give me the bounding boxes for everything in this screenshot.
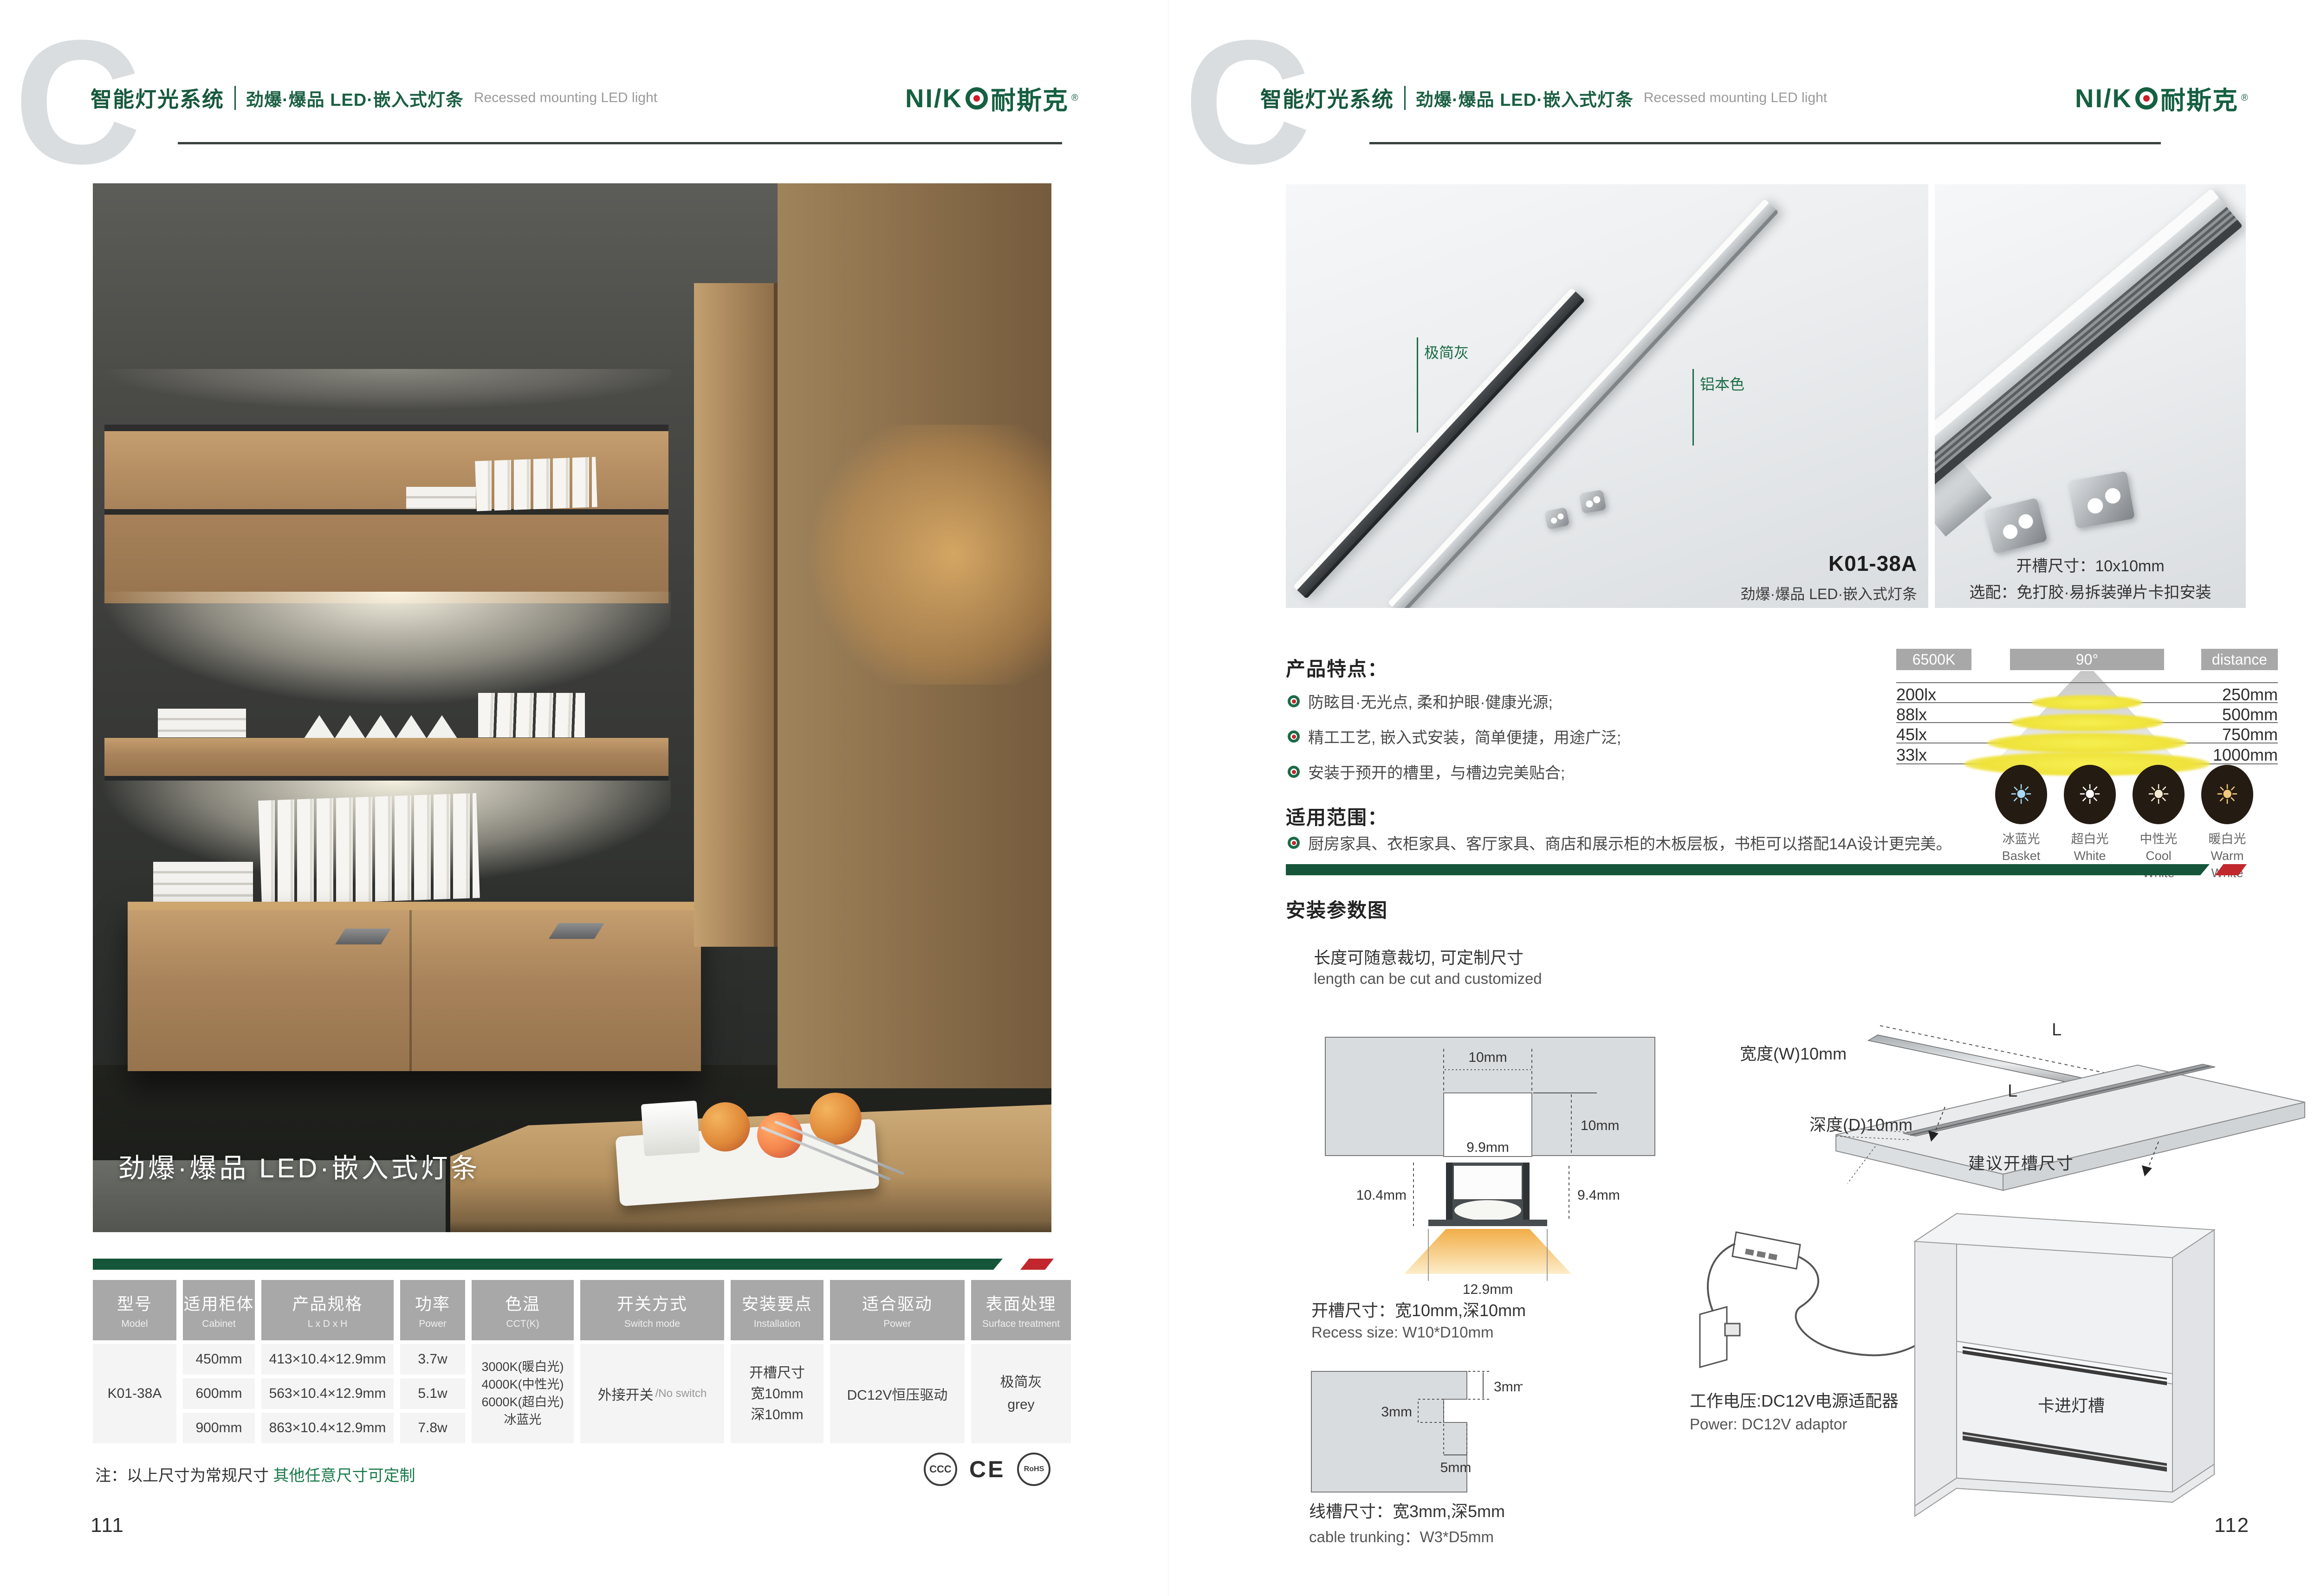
table-header-installation: 安装要点Installation (731, 1280, 823, 1340)
mounting-clip-icon (2068, 471, 2135, 529)
cross-section-diagram: 10mm 10mm 9.9mm 10.4mm 9.4mm 12.9mm (1318, 1002, 1690, 1299)
ce-mark-icon: CE (969, 1456, 1005, 1483)
cct-option-ice-blue: ☀ 冰蓝光Basket (1994, 765, 2048, 881)
brand-logo: NI/K 耐斯克 ® (905, 80, 1078, 116)
certification-marks: CCC CE RoHS (924, 1453, 1050, 1486)
feature-item: 安装于预开的槽里，与槽边完美贴合; (1288, 762, 1845, 785)
rohs-mark-icon: RoHS (1017, 1453, 1050, 1486)
header-underline (178, 142, 1062, 144)
brand-logo-dot-icon (2143, 95, 2150, 102)
shelf-divider (104, 509, 668, 515)
sun-icon: ☀ (1995, 765, 2047, 824)
feature-item: 防眩目·无光点, 柔和护眼·健康光源; (1288, 691, 1845, 714)
distance-value: 1000mm (2213, 745, 2278, 765)
header-system-title: 智能灯光系统 (1260, 83, 1394, 113)
svg-text:3mm: 3mm (1494, 1379, 1523, 1395)
brand-registered-mark: ® (1071, 93, 1078, 103)
header-product-title: 劲爆·爆品 LED·嵌入式灯条 (1416, 85, 1634, 111)
brand-logo-cn: 耐斯克 (991, 80, 1069, 116)
trunk-size-cn: 线槽尺寸：宽3mm,深5mm (1309, 1498, 1505, 1522)
cell-power: 3.7w (400, 1344, 465, 1375)
svg-text:9.4mm: 9.4mm (1577, 1188, 1620, 1203)
door-handle-icon (335, 929, 391, 944)
cable-trunk-diagram: 3mm 3mm 5mm (1304, 1360, 1523, 1499)
page-number-left: 111 (91, 1514, 124, 1537)
table-header-cct: 色温CCT(K) (472, 1280, 574, 1340)
header-underline (1369, 142, 2161, 144)
power-voltage-en: Power: DC12V adaptor (1690, 1415, 1847, 1433)
cell-cabinet: 900mm (183, 1413, 255, 1443)
svg-text:5mm: 5mm (1440, 1460, 1472, 1475)
beam-gridline (1896, 682, 2278, 683)
lux-value: 88lx (1896, 705, 1927, 724)
mounting-clip-icon (1544, 507, 1569, 530)
brand-logo-o-icon (2135, 87, 2158, 110)
cell-power: 5.1w (400, 1378, 465, 1409)
cell-driver: DC12V恒压驱动 (830, 1344, 965, 1443)
diffuser (1293, 288, 1575, 590)
header-product-subtitle-en: Recessed mounting LED light (1644, 90, 1827, 106)
table-header-power: 功率Power (400, 1280, 465, 1340)
recess-size-en: Recess size: W10*D10mm (1311, 1324, 1493, 1341)
accessory-caption-2: 选配：免打胶·易拆装弹片卡扣安装 (1935, 580, 2246, 602)
tall-cabinet (694, 283, 778, 947)
svg-text:10.4mm: 10.4mm (1356, 1188, 1407, 1203)
install-title: 安装参数图 (1286, 895, 1388, 923)
distance-value: 500mm (2222, 705, 2278, 724)
distance-value: 250mm (2222, 685, 2278, 704)
trunk-size-en: cable trunking：W3*D5mm (1309, 1525, 1494, 1547)
left-header: 智能灯光系统 劲爆·爆品 LED·嵌入式灯条 Recessed mounting… (91, 83, 657, 113)
page-split-line (1168, 0, 1168, 1596)
beam-cct-chip: 6500K (1896, 649, 1971, 670)
model-code: K01-38A (1722, 551, 1917, 576)
cell-model: K01-38A (93, 1344, 176, 1443)
length-label-top: L (2052, 1020, 2062, 1040)
suggested-slot-caption: 建议开槽尺寸 (1968, 1150, 2074, 1174)
beam-angle-chip: 90° (2010, 649, 2164, 670)
sideboard-door-left (128, 910, 412, 1071)
wall-shelf-upper (104, 425, 668, 603)
light-pool (1987, 733, 2187, 753)
door-handle-icon (549, 923, 604, 939)
accessory-caption-1: 开槽尺寸：10x10mm (1935, 553, 2246, 576)
target-bullet-icon (1288, 730, 1300, 743)
books-middle-right (478, 693, 585, 737)
header-divider (234, 86, 236, 110)
cell-spec: 563×10.4×12.9mm (261, 1378, 394, 1409)
led-glow (93, 369, 671, 425)
table-note: 注：以上尺寸为常规尺寸 其他任意尺寸可定制 (95, 1463, 415, 1486)
color-label-aluminum: 铝本色 (1700, 373, 1744, 394)
lux-value: 33lx (1896, 745, 1927, 765)
table-header-switch: 开关方式Switch mode (580, 1280, 724, 1340)
svg-text:10mm: 10mm (1581, 1118, 1619, 1133)
wall-shelf-middle (104, 738, 668, 781)
profile-closeup (1935, 188, 2243, 495)
table-header-model: 型号Model (93, 1280, 176, 1340)
table-header-spec: 产品规格L x D x H (261, 1280, 394, 1340)
mounting-clip-icon (1579, 490, 1607, 514)
spec-table: 型号Model 适用柜体Cabinet 产品规格L x D x H 功率Powe… (93, 1280, 1071, 1443)
lux-value: 200lx (1896, 685, 1936, 704)
beam-distance-chip: distance (2201, 649, 2278, 670)
mounting-clip-icon (1984, 498, 2048, 554)
target-bullet-icon (1288, 837, 1300, 849)
cct-option-warm-white: ☀ 暖白光Warm White (2200, 765, 2254, 881)
brand-logo-dot-icon (973, 95, 980, 102)
cell-surface: 极简灰 grey (971, 1344, 1071, 1443)
cct-options: ☀ 冰蓝光Basket ☀ 超白光White ☀ 中性光Cool White ☀… (1994, 765, 2254, 881)
books-on-shelf (475, 457, 597, 511)
groove-width-label: 宽度(W)10mm (1740, 1040, 1847, 1065)
target-bullet-icon (1288, 766, 1300, 778)
cell-cabinet: 450mm (183, 1344, 255, 1375)
table-header-surface: 表面处理Surface treatment (971, 1280, 1071, 1340)
lux-value: 45lx (1896, 725, 1927, 744)
brand-logo-o-icon (966, 87, 988, 110)
range-title: 适用范围： (1286, 802, 1388, 830)
photo-caption: 劲爆·爆品 LED·嵌入式灯条 (118, 1146, 480, 1185)
groove-depth-label: 深度(D)10mm (1809, 1111, 1913, 1136)
right-header: 智能灯光系统 劲爆·爆品 LED·嵌入式灯条 Recessed mounting… (1260, 83, 1827, 113)
catalog-spread: { "brand": {"latin": "NI/K", "cn": "耐斯克"… (0, 0, 2321, 1596)
divider-bar-green (1286, 864, 2210, 875)
brand-registered-mark: ® (2241, 93, 2248, 103)
svg-text:10mm: 10mm (1468, 1050, 1507, 1065)
power-voltage-cn: 工作电压:DC12V电源适配器 (1690, 1388, 1899, 1412)
beam-diagram: 6500K 90° distance 200lx 88lx 45lx 33lx … (1896, 649, 2278, 774)
room-photo: 劲爆·爆品 LED·嵌入式灯条 (93, 183, 1051, 1232)
feature-item: 精工工艺, 嵌入式安装，简单便捷，用途广泛; (1288, 727, 1845, 750)
led-strip-aluminum (1388, 199, 1779, 608)
header-product-subtitle-en: Recessed mounting LED light (474, 90, 657, 106)
sun-icon: ☀ (2201, 765, 2253, 824)
brand-logo: NI/K 耐斯克 ® (2075, 80, 2248, 116)
brand-logo-latin: NI/K (2075, 83, 2133, 113)
svg-text:3mm: 3mm (1381, 1404, 1412, 1420)
cell-cabinet: 600mm (183, 1378, 255, 1409)
svg-text:9.9mm: 9.9mm (1466, 1140, 1509, 1155)
sideboard-door-right (414, 910, 701, 1071)
book-stack-sideboard (153, 862, 253, 902)
model-caption: 劲爆·爆品 LED·嵌入式灯条 (1722, 582, 1917, 604)
header-system-title: 智能灯光系统 (91, 83, 224, 113)
cell-spec: 413×10.4×12.9mm (261, 1344, 394, 1375)
cell-switch: 外接开关 /No switch (580, 1344, 724, 1443)
cell-installation: 开槽尺寸 宽10mm 深10mm (731, 1344, 823, 1443)
divider-bar-red (1020, 1259, 1054, 1270)
page-number-right: 112 (2214, 1514, 2250, 1537)
recess-size-cn: 开槽尺寸：宽10mm,深10mm (1311, 1297, 1526, 1321)
features-title: 产品特点： (1286, 653, 1388, 682)
cut-note-en: length can be cut and customized (1314, 970, 1542, 988)
cell-spec: 863×10.4×12.9mm (261, 1413, 394, 1443)
header-product-title: 劲爆·爆品 LED·嵌入式灯条 (246, 85, 464, 111)
color-label-grey: 极简灰 (1424, 341, 1469, 362)
table-header-cabinet: 适用柜体Cabinet (183, 1280, 255, 1340)
profile-base (1935, 220, 2243, 494)
sideboard (128, 902, 701, 1071)
table-header-driver: 适合驱动Power (830, 1280, 965, 1340)
model-block: K01-38A 劲爆·爆品 LED·嵌入式灯条 (1722, 551, 1917, 604)
light-pool (2010, 714, 2164, 731)
sun-icon: ☀ (2064, 765, 2116, 824)
white-cup (641, 1100, 700, 1156)
length-label-groove: L (2008, 1081, 2017, 1101)
brand-logo-cn: 耐斯克 (2160, 80, 2238, 116)
cell-cct: 3000K(暖白光) 4000K(中性光) 6000K(超白光) 冰蓝光 (472, 1344, 574, 1443)
cut-note-cn: 长度可随意裁切, 可定制尺寸 (1314, 944, 1524, 969)
label-leader-line (1692, 369, 1694, 446)
cabinet-diagram (1880, 1181, 2251, 1520)
book-stack-small (406, 487, 476, 509)
brand-logo-latin: NI/K (905, 83, 963, 113)
cct-option-cool-white: ☀ 中性光Cool White (2132, 765, 2185, 881)
clip-into-slot-label: 卡进灯槽 (2038, 1392, 2105, 1416)
divider-bar-green (93, 1259, 1003, 1270)
accessory-photo-card: 开槽尺寸：10x10mm 选配：免打胶·易拆装弹片卡扣安装 (1935, 184, 2246, 608)
book-stack-left (158, 709, 246, 737)
header-divider (1404, 86, 1406, 110)
diffuser (1388, 199, 1769, 607)
product-photo-card: 极简灰 铝本色 K01-38A 劲爆·爆品 LED·嵌入式灯条 (1286, 184, 1928, 608)
target-bullet-icon (1288, 695, 1300, 707)
svg-text:12.9mm: 12.9mm (1463, 1282, 1513, 1297)
books-standing (258, 793, 480, 905)
cell-power: 7.8w (400, 1413, 465, 1443)
warm-cabinet-glow (808, 425, 1051, 685)
distance-value: 750mm (2222, 725, 2278, 744)
ccc-mark-icon: CCC (924, 1453, 957, 1486)
sun-icon: ☀ (2133, 765, 2185, 824)
cct-option-white: ☀ 超白光White (2063, 765, 2117, 881)
label-leader-line (1417, 337, 1418, 433)
strip-body (1392, 203, 1776, 608)
light-pool (2031, 695, 2143, 710)
